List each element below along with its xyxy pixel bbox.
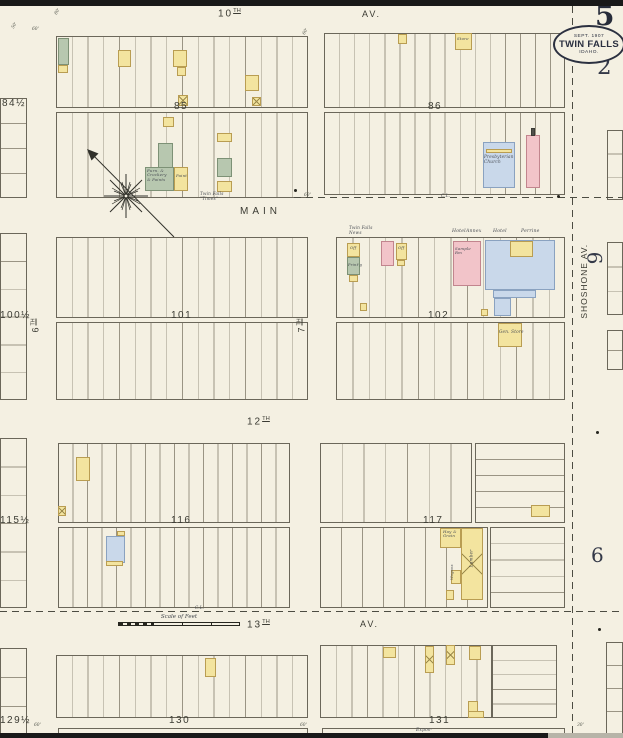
city-block bbox=[475, 443, 565, 523]
building bbox=[58, 506, 66, 516]
dimension-mark: 50' bbox=[12, 22, 19, 30]
building bbox=[118, 50, 131, 67]
map-annotation: Twin Falls News bbox=[349, 226, 373, 236]
map-annotation: Print'g bbox=[348, 263, 362, 267]
street-label-10th-av: AV. bbox=[362, 10, 381, 19]
dimension-mark: 30' bbox=[577, 724, 584, 728]
map-annotation: C.L. bbox=[441, 194, 450, 199]
street-label-ordinal: TH bbox=[31, 319, 37, 326]
map-annotation: Perrine bbox=[521, 229, 540, 234]
building bbox=[217, 158, 232, 177]
building bbox=[469, 646, 481, 660]
city-block bbox=[490, 527, 565, 608]
street-label-text: AV. bbox=[360, 619, 379, 629]
building bbox=[383, 647, 396, 658]
building bbox=[398, 34, 407, 44]
utility-dot bbox=[557, 195, 560, 198]
map-annotation: Sample Rm bbox=[455, 247, 471, 256]
street-label-12th: 12TH bbox=[247, 417, 270, 427]
street-label-13th-av: AV. bbox=[360, 620, 379, 629]
map-annotation: Off bbox=[350, 246, 356, 250]
map-annotation: Lumber bbox=[470, 544, 475, 572]
scale-bar-graphic bbox=[118, 622, 240, 626]
city-block bbox=[492, 645, 557, 718]
street-label-text: MAIN bbox=[240, 206, 281, 217]
street-label-shoshone-av: SHOSHONE AV. bbox=[580, 236, 589, 326]
city-block bbox=[606, 642, 623, 734]
building bbox=[531, 505, 550, 517]
scan-edge-bottom bbox=[0, 733, 623, 738]
building bbox=[425, 646, 434, 673]
building bbox=[446, 590, 454, 600]
map-annotation: Store bbox=[457, 37, 469, 41]
block-number: 117 bbox=[423, 516, 443, 526]
scale-bar: Scale of Feet bbox=[114, 614, 244, 626]
map-annotation: Annex bbox=[466, 229, 482, 234]
street-centerline bbox=[294, 197, 623, 198]
city-block bbox=[58, 443, 290, 523]
scale-bar-label: Scale of Feet bbox=[114, 614, 244, 620]
building bbox=[468, 711, 484, 718]
map-annotation: Hay & Grain bbox=[443, 530, 457, 539]
block-number: 84½ bbox=[2, 99, 26, 109]
utility-dot bbox=[598, 628, 601, 631]
dimension-mark: 60' bbox=[303, 28, 310, 36]
building bbox=[481, 309, 488, 316]
building bbox=[531, 128, 535, 136]
street-centerline bbox=[0, 611, 623, 612]
block-number: 101 bbox=[171, 311, 192, 321]
building bbox=[58, 65, 68, 73]
dimension-mark: 60' bbox=[32, 28, 39, 32]
street-label-ordinal: TH bbox=[233, 8, 241, 14]
city-block bbox=[320, 443, 472, 523]
building bbox=[76, 457, 90, 481]
title-stamp-oval: SEPT. 1907 TWIN FALLS IDAHO. bbox=[553, 25, 623, 64]
street-label-13th: 13TH bbox=[247, 620, 270, 630]
block-number: 131 bbox=[429, 716, 450, 726]
building bbox=[360, 303, 367, 311]
city-block bbox=[56, 655, 308, 718]
adjacent-sheet-ref-lower: 6 bbox=[591, 545, 604, 565]
scan-edge-bottom-right bbox=[548, 733, 623, 738]
block-number: 100½ bbox=[0, 311, 31, 321]
building bbox=[446, 645, 455, 665]
utility-dot bbox=[294, 189, 297, 192]
map-annotation: Hotel bbox=[493, 229, 507, 234]
map-annotation: Presbyterian Church bbox=[484, 155, 514, 165]
street-label-ordinal: TH bbox=[262, 416, 270, 422]
stamp-city: TWIN FALLS bbox=[559, 39, 619, 50]
street-label-ordinal: TH bbox=[297, 319, 303, 326]
scan-edge-top bbox=[0, 0, 623, 6]
street-label-text: 12 bbox=[247, 416, 262, 427]
building bbox=[106, 536, 125, 563]
building bbox=[486, 149, 512, 153]
building bbox=[349, 275, 358, 282]
city-block bbox=[0, 98, 27, 198]
building bbox=[498, 323, 522, 347]
city-block bbox=[320, 645, 492, 718]
sanborn-map-sheet: Twin Falls "Times"Twin Falls NewsHotelAn… bbox=[0, 0, 623, 738]
block-number: 102 bbox=[428, 311, 449, 321]
building bbox=[245, 75, 259, 91]
utility-dot bbox=[596, 431, 599, 434]
block-number: 115½ bbox=[0, 516, 30, 526]
block-number: 86 bbox=[428, 102, 442, 112]
dimension-mark: 60' bbox=[300, 724, 307, 728]
building bbox=[163, 117, 174, 127]
building bbox=[106, 561, 123, 566]
scale-bar-fine-segments bbox=[118, 622, 154, 626]
city-block bbox=[607, 242, 623, 315]
building bbox=[510, 241, 533, 257]
building bbox=[381, 241, 394, 266]
map-annotation: Hotel bbox=[452, 229, 466, 234]
street-label-text: 10 bbox=[218, 8, 233, 19]
street-label-main: MAIN bbox=[240, 207, 281, 217]
map-annotation: C.L. bbox=[195, 606, 204, 611]
city-block bbox=[56, 322, 308, 400]
building bbox=[117, 531, 125, 536]
stamp-state: IDAHO. bbox=[579, 50, 599, 55]
city-block bbox=[607, 130, 623, 200]
city-block bbox=[324, 33, 565, 108]
city-block bbox=[58, 527, 290, 608]
block-number: 116 bbox=[171, 516, 191, 526]
street-label-6th: 6TH bbox=[32, 311, 41, 341]
building bbox=[173, 50, 187, 67]
north-arrow-compass bbox=[74, 140, 184, 244]
map-annotation: Gen. Store bbox=[499, 330, 524, 335]
street-label-text: 6 bbox=[31, 325, 41, 332]
city-block bbox=[607, 330, 623, 370]
street-label-ordinal: TH bbox=[262, 619, 270, 625]
street-label-text: 7 bbox=[297, 325, 307, 332]
city-block bbox=[336, 322, 565, 400]
street-label-10th: 10TH bbox=[218, 9, 241, 19]
city-block bbox=[56, 237, 308, 318]
street-centerline bbox=[572, 6, 573, 733]
scale-bar-coarse-segments bbox=[154, 622, 240, 626]
block-number: 129½ bbox=[0, 716, 31, 726]
map-annotation: Wagons bbox=[450, 558, 454, 586]
building bbox=[397, 260, 405, 266]
map-annotation: Off bbox=[398, 246, 404, 250]
street-label-7th: 7TH bbox=[298, 311, 307, 341]
building bbox=[494, 298, 511, 316]
building bbox=[177, 67, 186, 76]
adjacent-sheet-ref-upper: 6 bbox=[584, 252, 604, 265]
building bbox=[205, 658, 216, 677]
dimension-mark: 60' bbox=[34, 724, 41, 728]
dimension-mark: 80' bbox=[55, 8, 62, 16]
building bbox=[58, 38, 69, 65]
building bbox=[493, 290, 536, 298]
building bbox=[252, 97, 261, 106]
map-annotation: Twin Falls "Times" bbox=[200, 192, 224, 202]
block-number: 85 bbox=[174, 102, 188, 112]
building bbox=[526, 135, 540, 188]
block-number: 130 bbox=[169, 716, 190, 726]
street-label-text: 13 bbox=[247, 619, 262, 630]
street-label-text: AV. bbox=[362, 9, 381, 19]
dimension-mark: 60' bbox=[304, 194, 311, 198]
building bbox=[217, 133, 232, 142]
